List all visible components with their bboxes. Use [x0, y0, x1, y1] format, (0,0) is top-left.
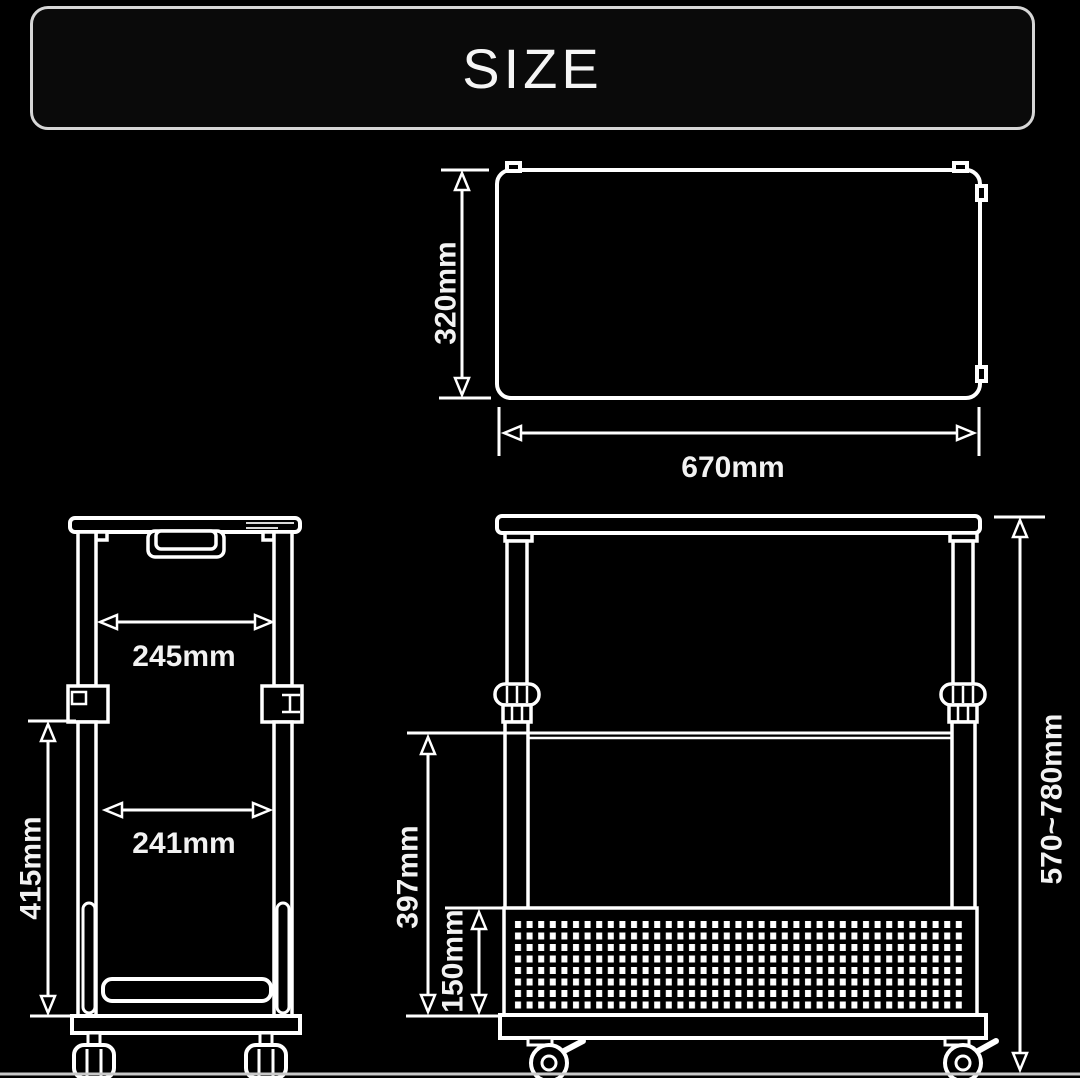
front-view-basket-height-label: 150mm — [437, 909, 470, 1012]
top-view-depth-label: 320mm — [430, 241, 463, 344]
front-view — [407, 516, 996, 1078]
side-view-lower-width-label: 241mm — [132, 827, 235, 860]
front-view-shelf-height-label: 397mm — [392, 825, 425, 928]
side-view-upper-width-label: 245mm — [132, 640, 235, 673]
product-size-diagram-page: { "title": "SIZE", "colors": { "backgrou… — [0, 0, 1080, 1078]
caster-left — [74, 1033, 114, 1078]
clamp-knob-right — [941, 684, 985, 722]
clamp-knob-left — [495, 684, 539, 722]
front-view-basket-height-dimension — [472, 912, 486, 1012]
side-view-lower-width-dimension — [105, 803, 270, 817]
dimension-drawing: 320mm 670mm — [0, 0, 1080, 1078]
front-view-total-height-label: 570~780mm — [1036, 714, 1069, 885]
sticker-marks — [246, 523, 294, 528]
top-view-width-dimension — [499, 407, 979, 456]
side-view-upper-width-dimension — [100, 615, 272, 629]
side-view — [68, 518, 302, 1078]
caster-right — [246, 1033, 286, 1078]
top-view-width-label: 670mm — [681, 451, 784, 484]
caster-front-left — [528, 1038, 583, 1078]
caster-front-right — [945, 1038, 996, 1078]
side-view-height-label: 415mm — [15, 816, 48, 919]
top-view — [497, 163, 986, 398]
perforated-basket — [445, 908, 977, 1015]
